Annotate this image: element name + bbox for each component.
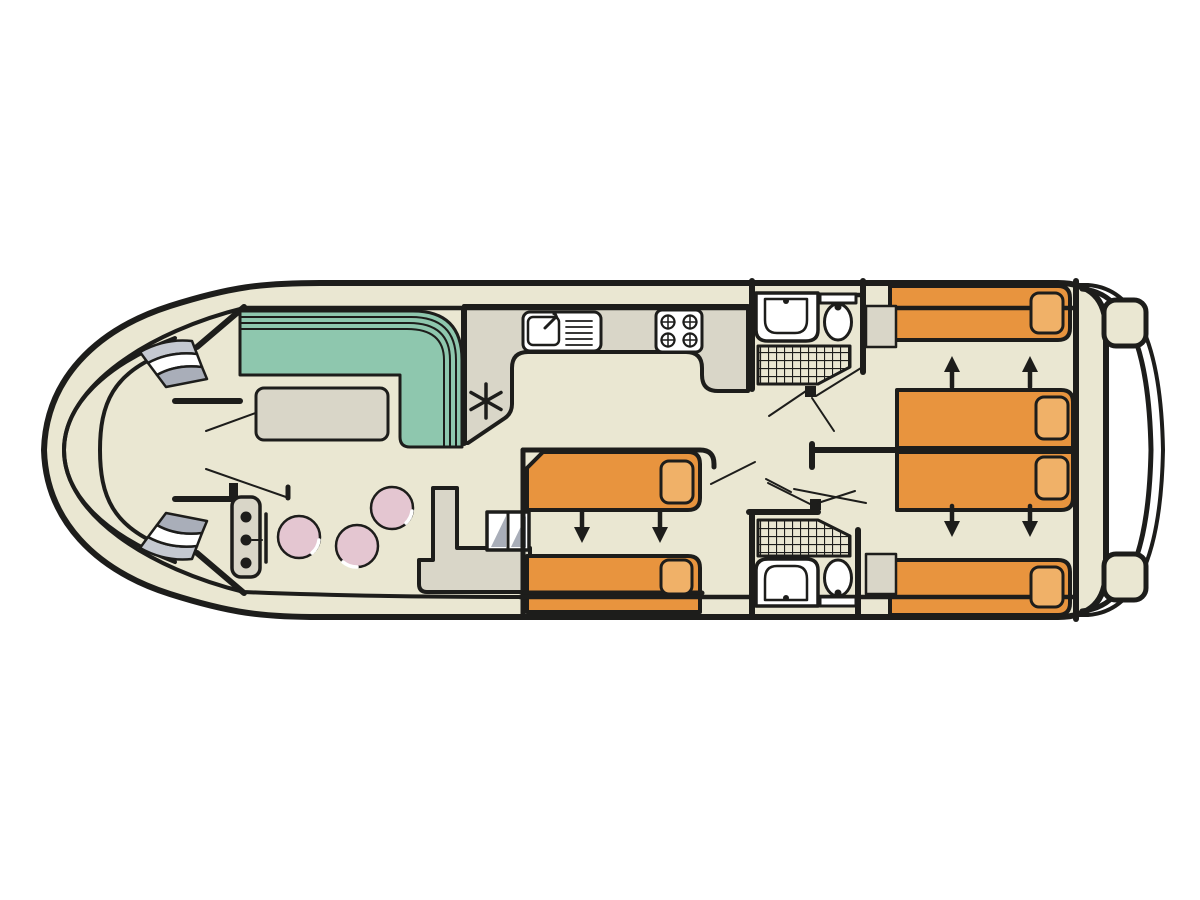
wardrobe-lower	[866, 554, 896, 594]
pillow	[1036, 397, 1068, 439]
cleat-top	[1104, 300, 1146, 346]
cleat-bottom	[1104, 554, 1146, 600]
pillow	[1031, 567, 1063, 607]
door-hinge	[810, 499, 821, 510]
faucet-dot	[783, 595, 789, 601]
toilet-cistern	[820, 294, 856, 303]
pillow	[661, 560, 692, 594]
floor-plan-canvas	[0, 0, 1200, 900]
sink	[523, 312, 601, 351]
console-knob	[241, 558, 252, 569]
boat-floor-plan	[0, 0, 1200, 900]
sink-basin	[528, 317, 559, 345]
washbasin	[765, 566, 807, 600]
wardrobe-upper	[866, 306, 896, 347]
pillow	[661, 461, 693, 503]
faucet-dot	[783, 298, 789, 304]
console-knob	[241, 512, 252, 523]
toilet-cistern	[820, 597, 856, 606]
washbasin	[765, 299, 807, 333]
hob	[656, 310, 702, 352]
pillow	[1031, 293, 1063, 333]
saloon-table	[256, 388, 388, 440]
pillow	[1036, 457, 1068, 499]
console-knob	[241, 535, 252, 546]
